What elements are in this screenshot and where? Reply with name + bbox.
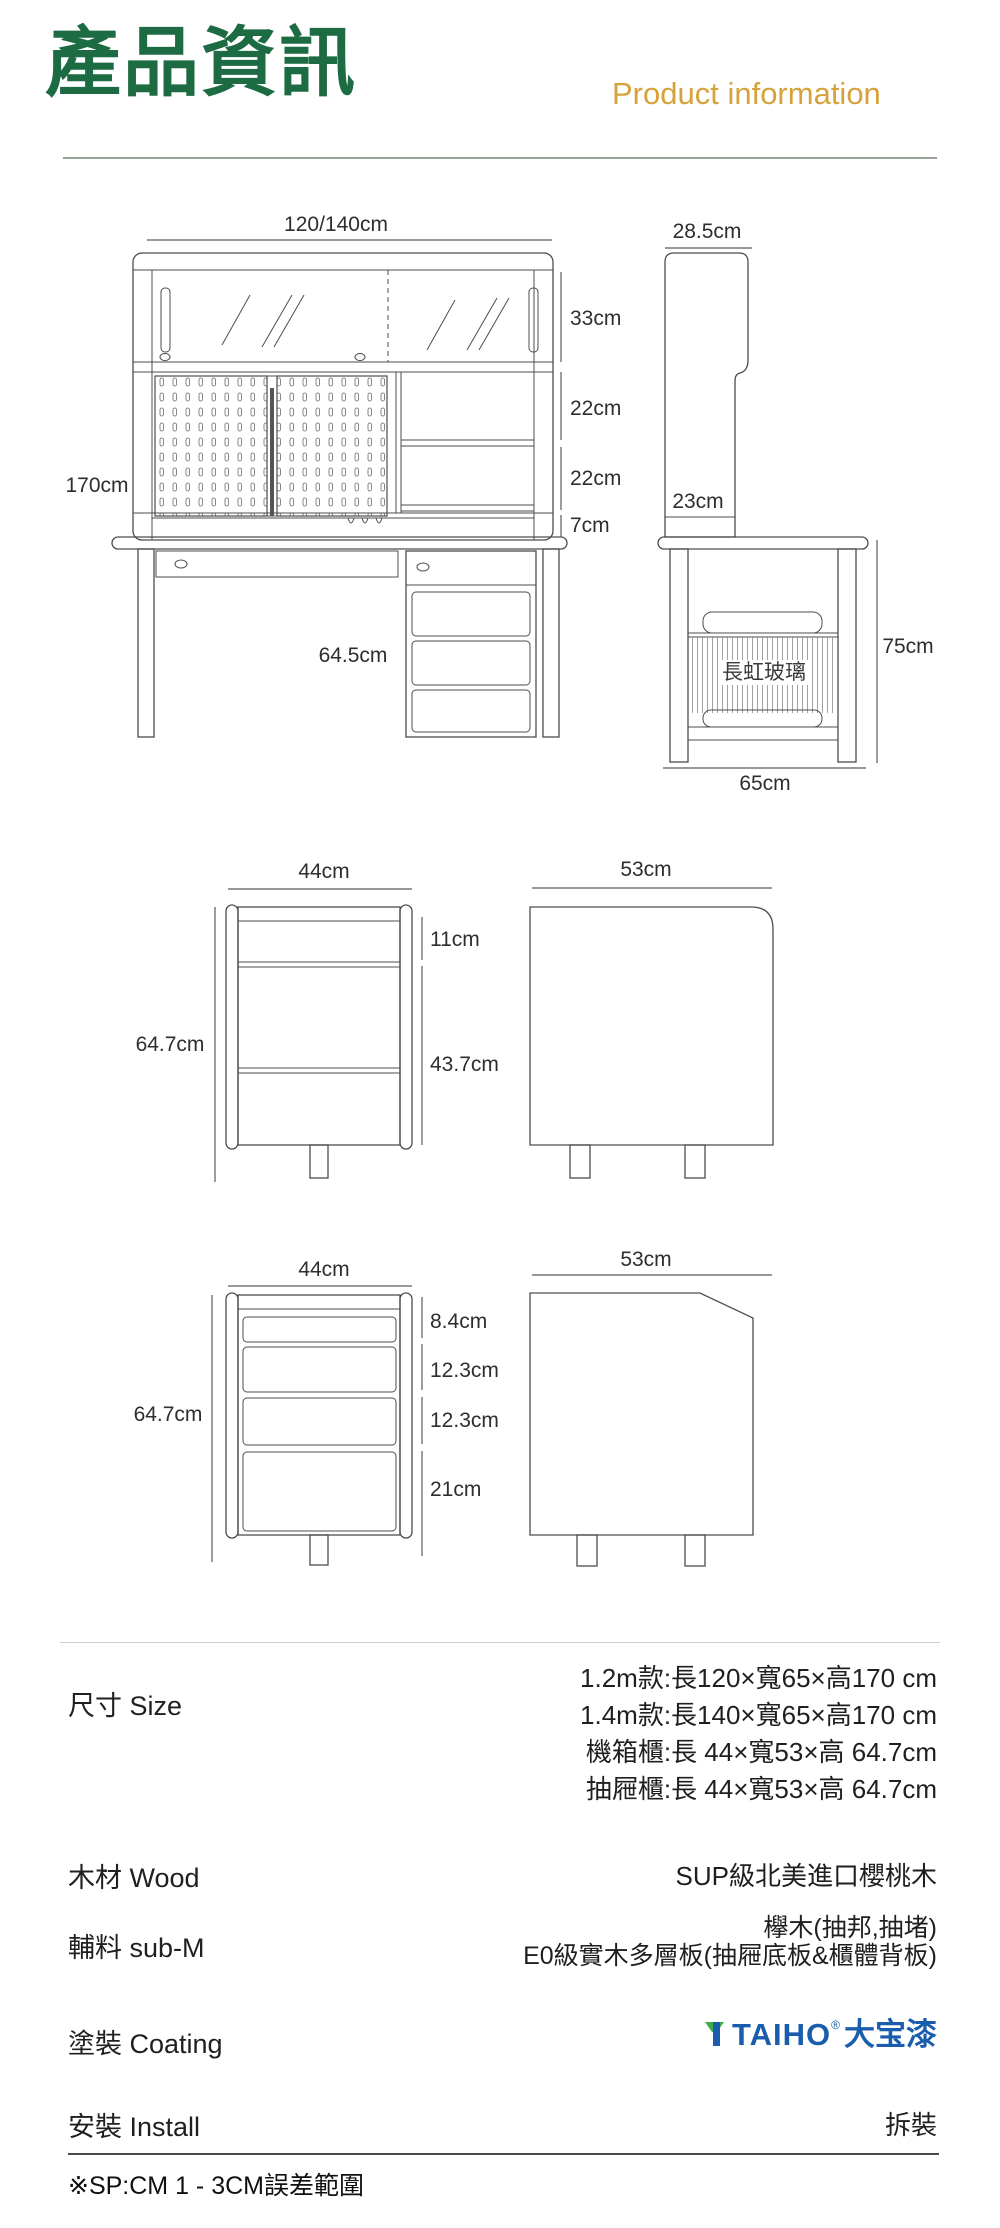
technical-drawings: 120/140cm 170cm	[0, 180, 1000, 1620]
spec-label-install: 安裝 Install	[68, 2105, 200, 2144]
desk-leg	[543, 549, 559, 737]
cabinet-foot	[577, 1535, 597, 1566]
svg-text:33cm: 33cm	[570, 307, 621, 330]
ribbed-glass-panel: 長虹玻璃	[688, 612, 838, 740]
cabinet-foot	[310, 1145, 328, 1178]
svg-text:22cm: 22cm	[570, 467, 621, 490]
desk-leg-side	[670, 549, 688, 762]
taiho-brand-chinese: 大宝漆	[844, 2018, 937, 2052]
size-line-1: 1.2m款:長120×寬65×高170 cm	[580, 1660, 937, 1697]
desktop	[112, 537, 567, 549]
desk-side-view: 28.5cm 23cm 長虹玻璃 75cm 65cm	[658, 220, 934, 795]
taiho-brand-name: TAIHO	[732, 2018, 831, 2052]
drawer4-dimension: 21cm	[430, 1478, 481, 1501]
host-depth-dimension: 53cm	[620, 858, 671, 881]
spec-label-coating: 塗裝 Coating	[68, 2022, 223, 2061]
host-width-dimension: 44cm	[298, 860, 349, 883]
glass-type-label: 長虹玻璃	[722, 661, 806, 684]
spec-divider-top	[60, 1642, 940, 1643]
host-height-dimension: 64.7cm	[136, 1033, 205, 1056]
page-title: 產品資訊	[45, 24, 357, 104]
desk-section-dimensions: 33cm 22cm 22cm 7cm	[561, 272, 621, 537]
tolerance-footnote: ※SP:CM 1 - 3CM誤差範圍	[68, 2166, 364, 2202]
drawer-pedestal	[406, 551, 536, 737]
header-divider	[63, 157, 937, 159]
sub-material-line-1: 欅木(抽邦,抽堵)	[523, 1914, 937, 1942]
spec-value-size: 1.2m款:長120×寬65×高170 cm 1.4m款:長140×寬65×高1…	[580, 1660, 937, 1808]
size-line-4: 抽屜櫃:長 44×寬53×高 64.7cm	[580, 1771, 937, 1808]
host-top-gap-dimension: 11cm	[430, 928, 480, 951]
spec-value-wood: SUP級北美進口櫻桃木	[676, 1856, 937, 1893]
spec-value-install: 拆裝	[885, 2105, 937, 2142]
page-subtitle: Product information	[612, 76, 881, 112]
drawer-depth-dimension: 53cm	[620, 1248, 671, 1271]
spec-label-size: 尺寸 Size	[68, 1684, 182, 1723]
drawer-width-dimension: 44cm	[298, 1258, 349, 1281]
sub-material-line-2: E0級實木多層板(抽屜底板&櫃體背板)	[523, 1942, 937, 1970]
cabinet-foot	[685, 1145, 705, 1178]
desk-leg	[138, 549, 154, 737]
drawer2-dimension: 12.3cm	[430, 1359, 499, 1382]
cabinet-foot	[570, 1145, 590, 1178]
product-information-page: 產品資訊 Product information 120/140cm 170cm	[0, 0, 1000, 2228]
drawer3-dimension: 12.3cm	[430, 1409, 499, 1432]
door-handle	[161, 288, 170, 352]
desk-width-dimension: 120/140cm	[284, 213, 388, 236]
spec-label-wood: 木材 Wood	[68, 1856, 200, 1895]
cabinet-foot	[310, 1535, 328, 1565]
host-cabinet-side-view: 53cm	[530, 858, 773, 1178]
hutch-lower-depth-dimension: 23cm	[672, 490, 723, 513]
desk-depth-dimension: 65cm	[739, 772, 790, 795]
size-line-2: 1.4m款:長140×寬65×高170 cm	[580, 1697, 937, 1734]
taiho-logo-icon	[704, 2018, 730, 2055]
desk-clearance-dimension: 64.5cm	[319, 644, 388, 667]
host-cabinet-front-view: 44cm 64.7cm 11cm 43.7cm	[136, 860, 499, 1182]
glass-reflection-marks	[222, 295, 509, 350]
spec-value-sub-material: 欅木(抽邦,抽堵) E0級實木多層板(抽屜底板&櫃體背板)	[523, 1914, 937, 1970]
pegboard-doors	[155, 376, 387, 516]
drawer-cabinet-side-view: 53cm	[530, 1248, 772, 1566]
desk-leg-side	[838, 549, 856, 762]
cabinet-foot	[685, 1535, 705, 1566]
spec-divider-bottom	[68, 2153, 939, 2155]
svg-text:22cm: 22cm	[570, 397, 621, 420]
desk-front-view: 120/140cm 170cm	[65, 213, 621, 737]
svg-text:7cm: 7cm	[570, 514, 610, 537]
registered-mark-icon: ®	[831, 2018, 840, 2032]
cable-notches	[348, 518, 382, 523]
drawer1-dimension: 8.4cm	[430, 1310, 487, 1333]
desk-height-dimension: 170cm	[65, 474, 128, 497]
host-door-dimension: 43.7cm	[430, 1053, 499, 1076]
coating-brand: TAIHO ® 大宝漆	[704, 2018, 937, 2055]
hutch-depth-dimension: 28.5cm	[673, 220, 742, 243]
drawer-height-dimension: 64.7cm	[134, 1403, 203, 1426]
size-line-3: 機箱櫃:長 44×寬53×高 64.7cm	[580, 1734, 937, 1771]
drawer-cabinet-front-view: 44cm 64.7cm 8.4cm 12.3cm 12.3cm 21cm	[134, 1258, 499, 1565]
spec-label-sub-material: 輔料 sub-M	[68, 1926, 205, 1965]
desk-side-height-dimension: 75cm	[882, 635, 933, 658]
